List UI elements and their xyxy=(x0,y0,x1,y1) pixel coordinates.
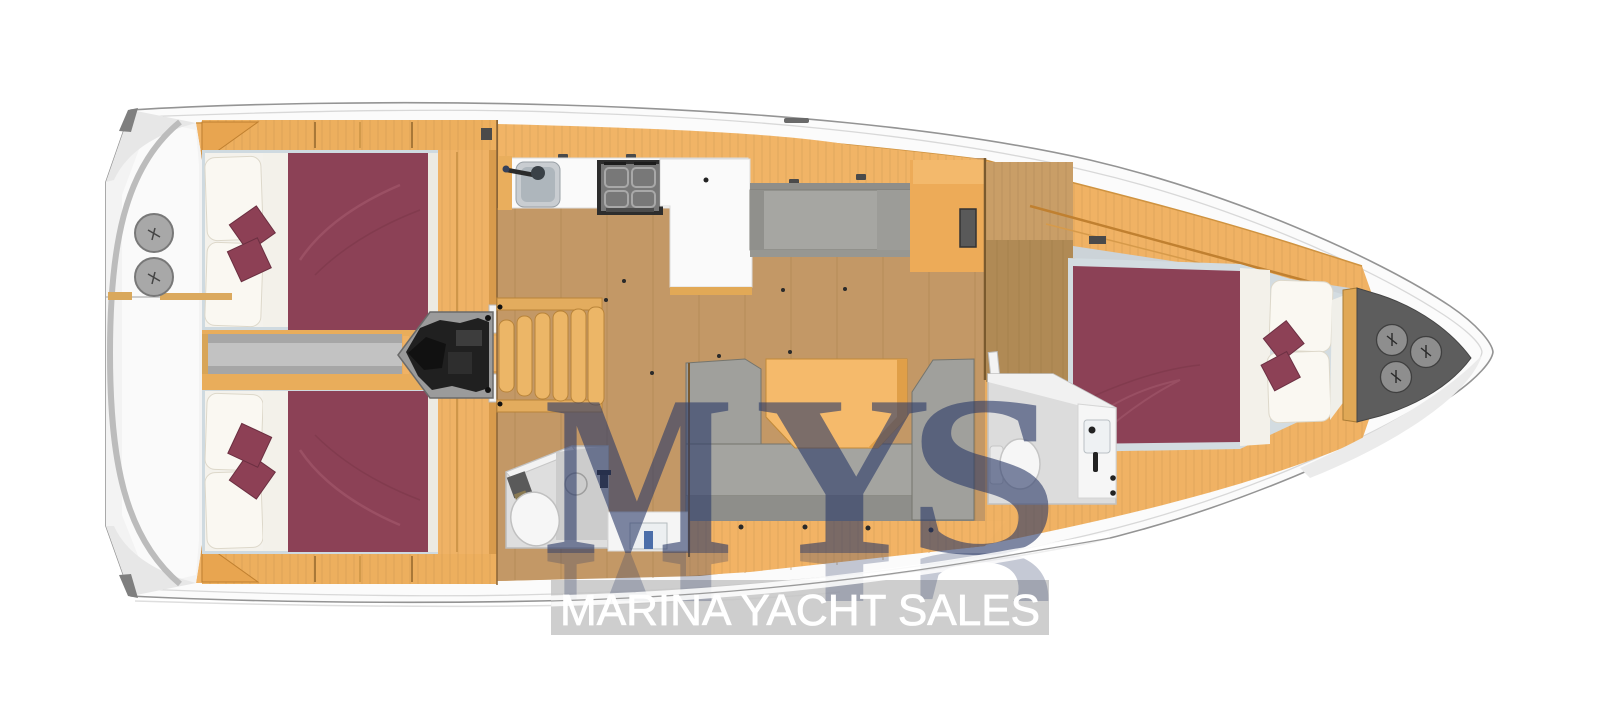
svg-text:MARINA YACHT SALES: MARINA YACHT SALES xyxy=(560,586,1040,635)
